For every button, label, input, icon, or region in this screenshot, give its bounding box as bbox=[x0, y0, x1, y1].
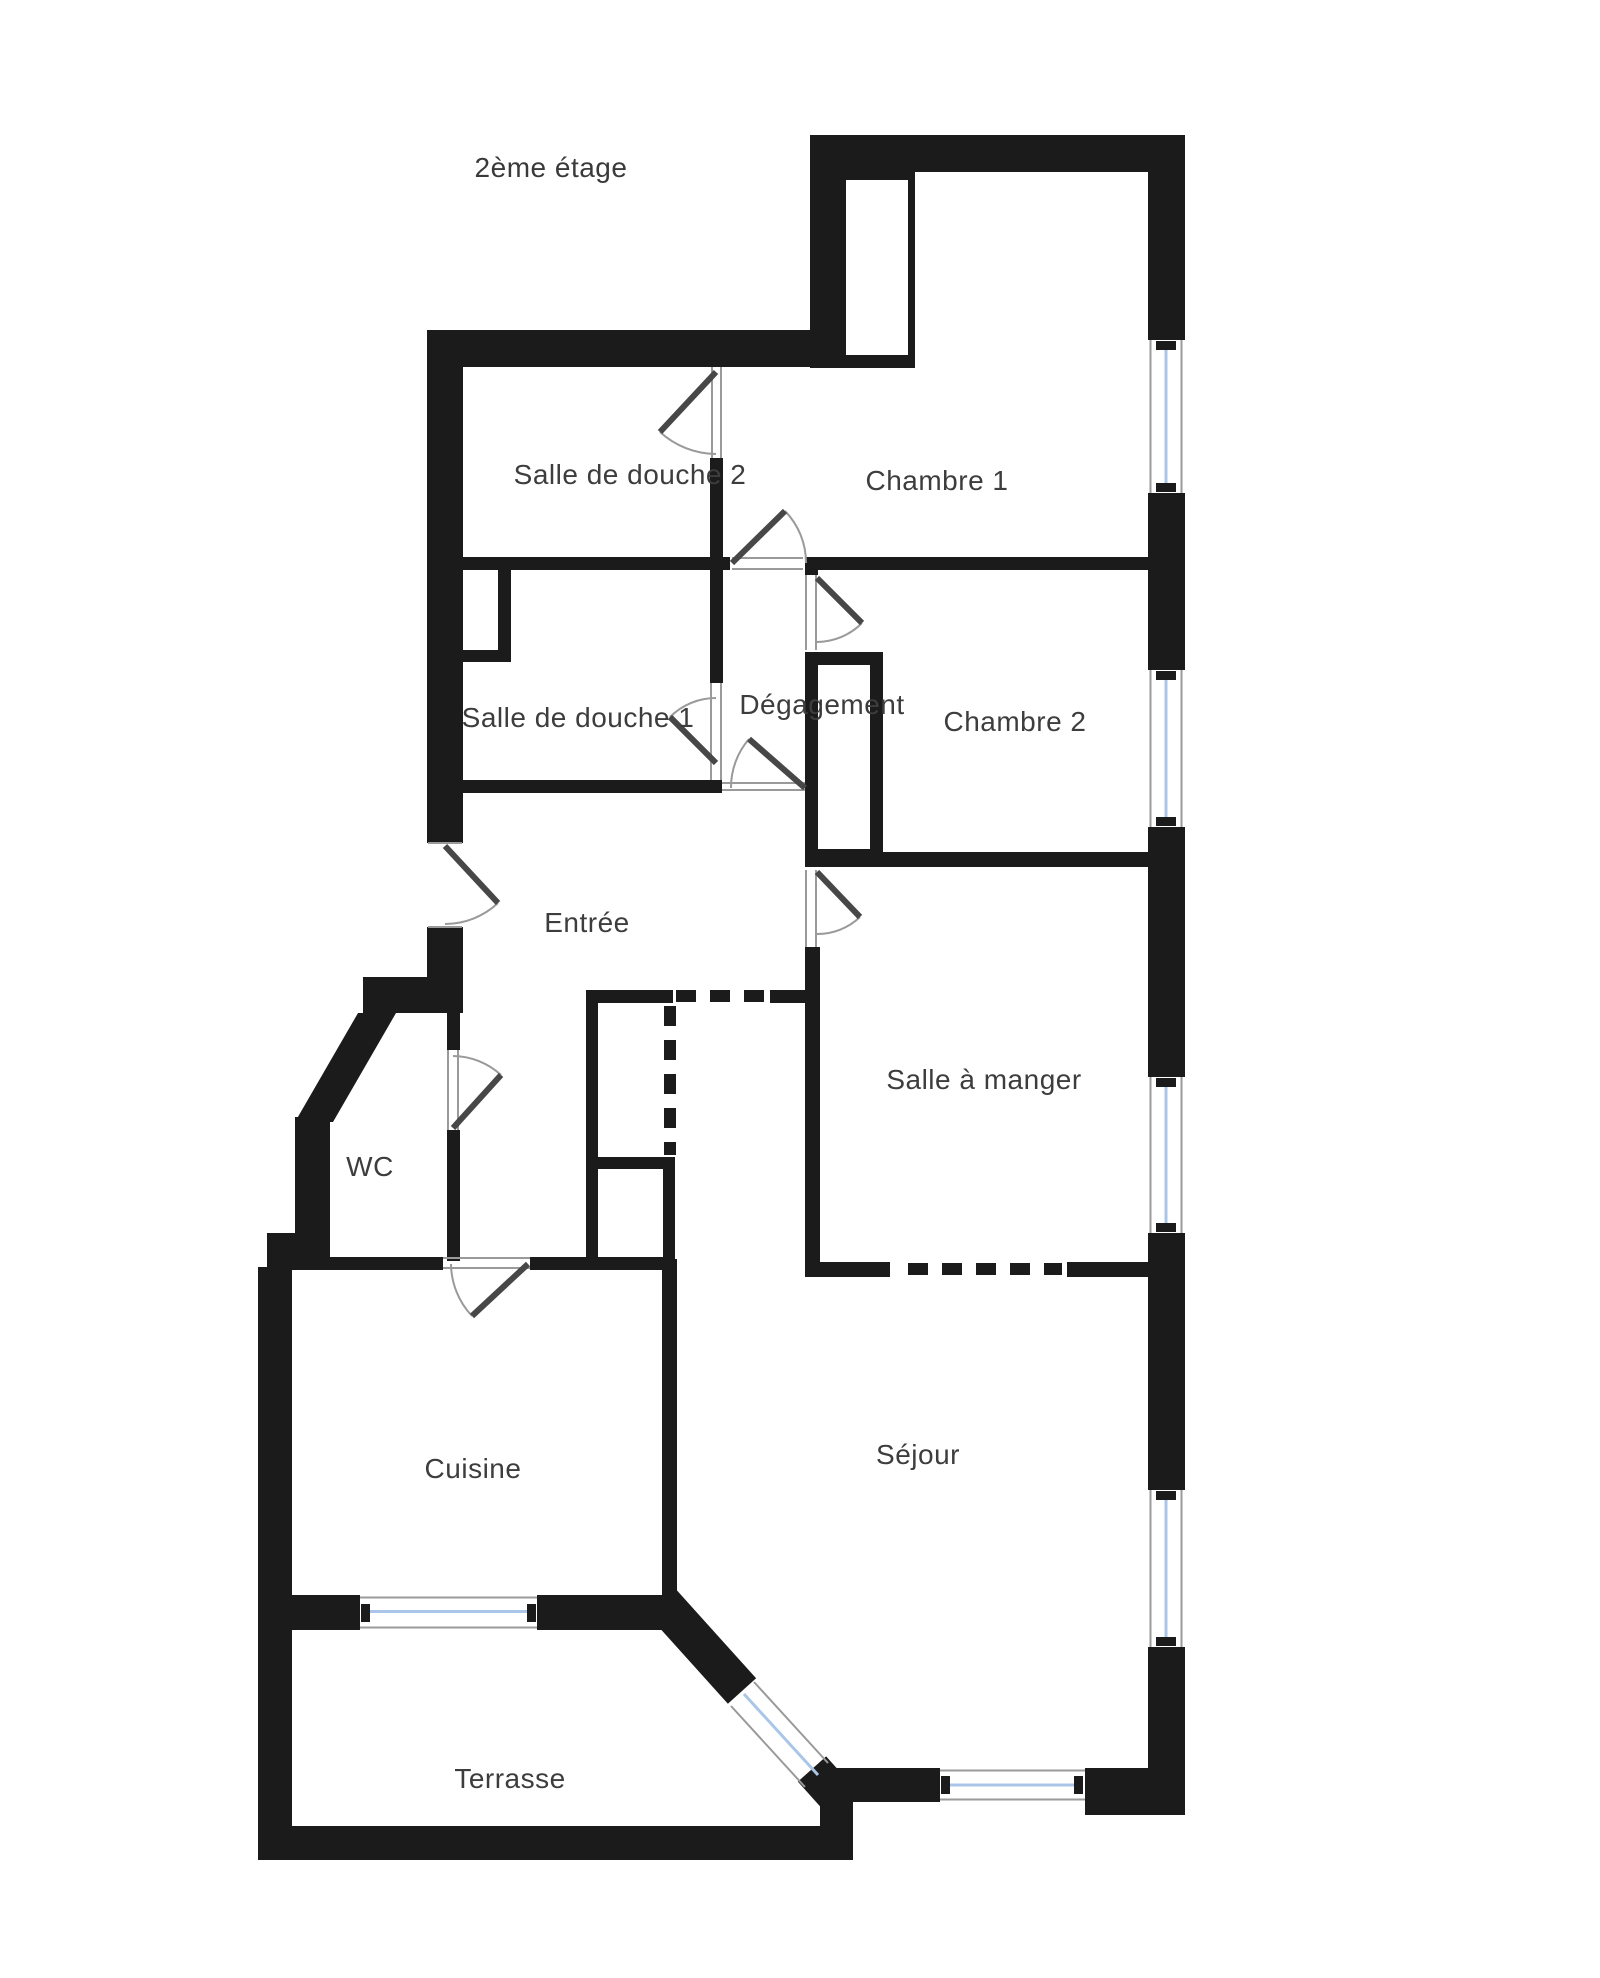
window-end-icon bbox=[361, 1604, 370, 1622]
room-label-cuisine: Cuisine bbox=[425, 1453, 522, 1485]
wall-segment bbox=[463, 780, 722, 793]
door-degagement-leaf bbox=[749, 739, 805, 788]
window-end-icon bbox=[1156, 341, 1176, 350]
duct-core bbox=[846, 180, 908, 355]
wall-segment bbox=[593, 1157, 673, 1169]
window-end-icon bbox=[1156, 817, 1176, 826]
wall-segment bbox=[427, 330, 463, 843]
wall-segment bbox=[586, 990, 673, 1003]
wall-segment bbox=[1148, 172, 1185, 340]
window-end-icon bbox=[1156, 483, 1176, 492]
door-entree-arc bbox=[445, 903, 498, 924]
wall-segment bbox=[1067, 1262, 1148, 1277]
wall-segment bbox=[267, 1257, 443, 1270]
wall-segment bbox=[1148, 493, 1185, 670]
floorplan-canvas: 2ème étage Salle de douche 2Chambre 1Sal… bbox=[0, 0, 1600, 1978]
wall-diagonal bbox=[660, 1600, 742, 1691]
wall-segment bbox=[662, 1259, 677, 1597]
room-label-chambre-2: Chambre 2 bbox=[943, 706, 1086, 738]
wall-segment bbox=[1148, 827, 1185, 1077]
wall-segment bbox=[427, 330, 850, 367]
door-degagement-arc bbox=[731, 739, 749, 788]
door-wc-arc bbox=[453, 1056, 501, 1075]
window-end-icon bbox=[527, 1604, 536, 1622]
wall-segment bbox=[537, 1595, 663, 1630]
wall-segment bbox=[770, 990, 808, 1003]
window-frame bbox=[754, 1682, 828, 1763]
room-label-salle-a-manger: Salle à manger bbox=[886, 1064, 1081, 1096]
wall-segment bbox=[586, 990, 598, 1270]
room-label-salle-de-douche-2: Salle de douche 2 bbox=[514, 459, 747, 491]
wall-segment bbox=[805, 852, 1148, 867]
wall-segment bbox=[870, 652, 883, 862]
wall-segment bbox=[295, 1117, 330, 1238]
window-end-icon bbox=[1156, 1223, 1176, 1232]
window-end-icon bbox=[1156, 1637, 1176, 1646]
room-label-sejour: Séjour bbox=[876, 1439, 960, 1471]
room-label-entree: Entrée bbox=[544, 907, 630, 939]
room-label-wc: WC bbox=[346, 1151, 394, 1183]
wall-segment bbox=[810, 135, 1185, 172]
wall-segment bbox=[710, 458, 723, 683]
wall-segment bbox=[1148, 1233, 1185, 1490]
wall-segment bbox=[805, 557, 1148, 570]
door-salle-a-manger-arc bbox=[817, 917, 860, 934]
door-entree-leaf bbox=[445, 846, 498, 903]
door-chambre-1-arc bbox=[785, 511, 806, 563]
wall-segment bbox=[805, 652, 818, 862]
room-label-terrasse: Terrasse bbox=[454, 1763, 565, 1795]
window-end-icon bbox=[1074, 1776, 1083, 1794]
wall-segment bbox=[498, 568, 511, 662]
wall-segment bbox=[258, 1826, 853, 1860]
room-label-salle-de-douche-1: Salle de douche 1 bbox=[462, 702, 695, 734]
wall-segment bbox=[258, 1267, 292, 1826]
window-glass bbox=[744, 1694, 818, 1775]
door-salle-de-douche-2-leaf bbox=[660, 372, 716, 432]
window-end-icon bbox=[1156, 1491, 1176, 1500]
door-cuisine-leaf bbox=[472, 1264, 528, 1316]
door-chambre-2-arc bbox=[817, 623, 862, 642]
window-end-icon bbox=[1156, 1078, 1176, 1087]
wall-segment bbox=[363, 977, 463, 1013]
wall-diagonal bbox=[295, 1013, 396, 1122]
room-label-degagement: Dégagement bbox=[739, 689, 904, 721]
wall-segment bbox=[805, 1262, 890, 1277]
window-end-icon bbox=[941, 1776, 950, 1794]
wall-segment bbox=[447, 1013, 460, 1050]
door-wc-leaf bbox=[453, 1075, 501, 1128]
floor-title: 2ème étage bbox=[475, 152, 628, 184]
room-label-chambre-1: Chambre 1 bbox=[865, 465, 1008, 497]
wall-segment bbox=[663, 1157, 675, 1270]
door-chambre-1-leaf bbox=[732, 511, 785, 563]
door-salle-de-douche-2-arc bbox=[660, 432, 716, 454]
wall-segment bbox=[258, 1595, 360, 1630]
door-chambre-2-leaf bbox=[817, 578, 862, 623]
wall-segment bbox=[447, 1130, 460, 1261]
wall-segment bbox=[530, 1257, 663, 1270]
floorplan-drawing bbox=[0, 0, 1600, 1978]
window-end-icon bbox=[1156, 671, 1176, 680]
door-cuisine-arc bbox=[451, 1264, 472, 1316]
wall-segment bbox=[463, 650, 511, 662]
door-salle-a-manger-leaf bbox=[817, 872, 860, 917]
wall-segment bbox=[1085, 1768, 1185, 1815]
